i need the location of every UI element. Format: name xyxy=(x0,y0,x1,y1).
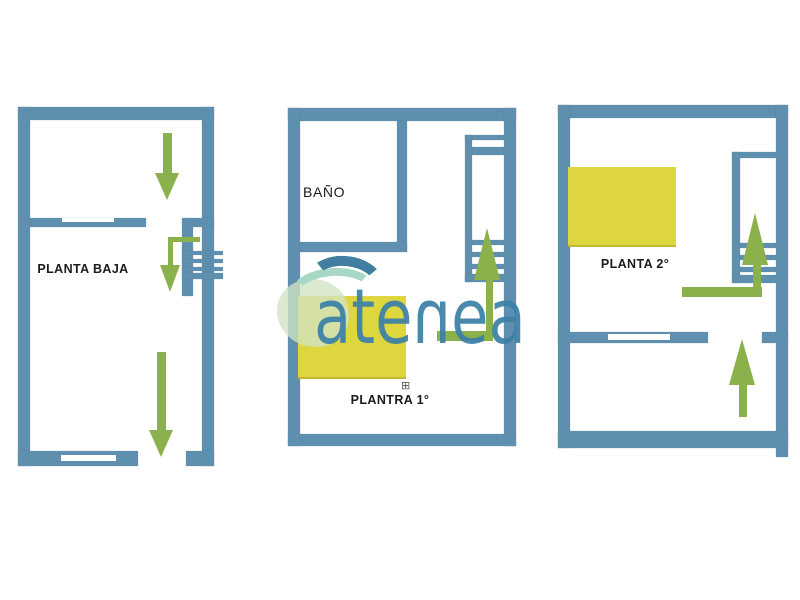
arrow-up-small-shaft xyxy=(739,383,747,417)
wall-left xyxy=(18,107,30,466)
window-notch xyxy=(62,218,114,222)
logo-letter: e xyxy=(451,279,488,355)
wall-right xyxy=(202,107,214,466)
bathroom-label: BAÑO xyxy=(303,184,345,200)
stair-tread xyxy=(182,259,223,263)
plan-label-planta-segunda: PLANTA 2° xyxy=(575,257,695,271)
arrow-down-long-shaft xyxy=(157,352,166,432)
wall-left xyxy=(558,105,570,448)
logo-letter: a xyxy=(488,279,525,355)
stair-tread xyxy=(182,267,223,271)
arrow-up-small-head xyxy=(729,339,755,385)
logo-letter: e xyxy=(375,279,412,355)
plan-label-planta-baja: PLANTA BAJA xyxy=(28,262,138,276)
floor-plans-canvas: PLANTA BAJA BAÑO ⊞ PLANTRA 1° xyxy=(0,0,800,600)
bed-rectangle xyxy=(568,167,676,247)
wall-bottom xyxy=(288,434,516,446)
wall-right xyxy=(776,105,788,457)
arrow-up-path-horizontal xyxy=(682,287,762,297)
wall-interior-stub xyxy=(762,332,788,343)
plan-label-planta-primera: PLANTRA 1° xyxy=(318,393,462,407)
wall-bottom xyxy=(558,431,788,448)
stair-tread xyxy=(182,251,223,255)
arrow-down-long-head xyxy=(149,430,173,457)
logo-wordmark: atenea xyxy=(314,279,526,355)
stair-top-bar xyxy=(732,152,776,158)
stair-landing xyxy=(472,147,504,155)
stair-base xyxy=(182,273,223,279)
logo-letter: t xyxy=(351,279,375,355)
window-slot xyxy=(608,334,670,340)
stair-wall xyxy=(465,135,472,282)
wall-top xyxy=(18,107,214,120)
floor-plan-planta-baja: PLANTA BAJA xyxy=(18,107,214,466)
wall-top xyxy=(558,105,788,118)
arrow-up-head xyxy=(742,213,768,265)
bathroom-wall-vertical xyxy=(397,121,407,251)
stair-wall xyxy=(732,152,740,283)
stair-top-bar xyxy=(465,135,504,140)
wall-left xyxy=(288,108,300,446)
bathroom-wall-horizontal xyxy=(300,242,407,252)
wall-bottom-right xyxy=(186,451,214,466)
window-marker: ⊞ xyxy=(401,381,410,392)
arrow-down-shaft xyxy=(163,133,172,175)
wall-top xyxy=(288,108,516,121)
stair-wall xyxy=(182,218,193,296)
arrow-up-shaft xyxy=(753,263,761,297)
window-slot xyxy=(61,455,116,461)
logo-letter-mirrored-n: n xyxy=(413,279,452,355)
stair-path-arrow-head xyxy=(160,265,180,292)
floor-plan-planta-segunda: PLANTA 2° xyxy=(558,105,788,448)
arrow-down-head xyxy=(155,173,179,200)
logo-letter: a xyxy=(314,279,351,355)
